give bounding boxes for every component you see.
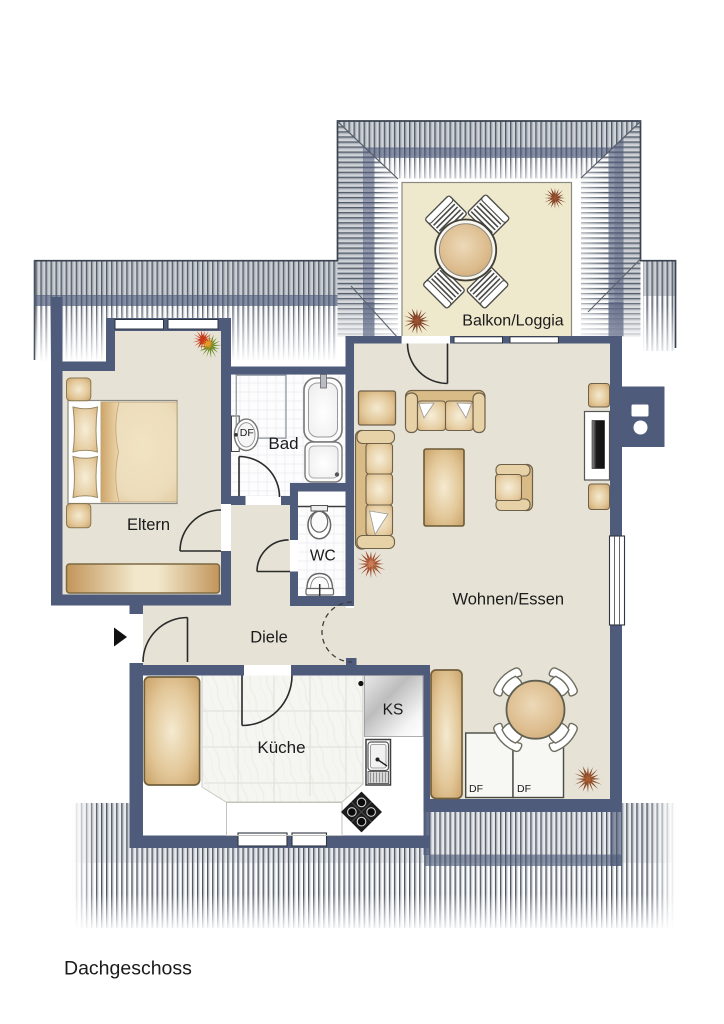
svg-text:DF: DF [240, 427, 254, 439]
svg-text:WC: WC [310, 548, 336, 565]
svg-text:Eltern: Eltern [127, 516, 170, 534]
svg-text:Wohnen/Essen: Wohnen/Essen [452, 591, 564, 609]
svg-text:KS: KS [383, 702, 404, 719]
svg-text:Diele: Diele [250, 629, 288, 647]
svg-text:Bad: Bad [268, 434, 298, 453]
svg-text:Dachgeschoss: Dachgeschoss [64, 958, 192, 980]
svg-text:Balkon/Loggia: Balkon/Loggia [462, 313, 564, 330]
svg-text:Küche: Küche [257, 738, 305, 757]
svg-text:DF: DF [517, 783, 531, 795]
svg-text:DF: DF [469, 783, 483, 795]
